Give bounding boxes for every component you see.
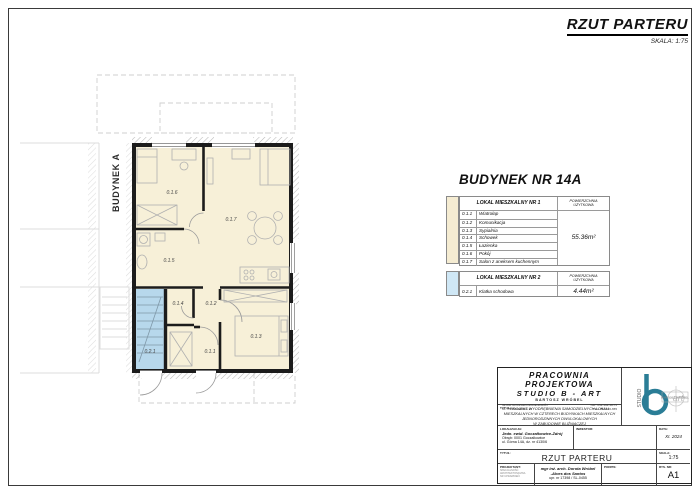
room-label: 0.2.1 (144, 349, 155, 355)
logo-studio-text: STUDIO (637, 388, 643, 407)
room-label: 0.1.1 (204, 349, 215, 355)
page-title: RZUT PARTERU (567, 16, 688, 36)
legend-row-name: Schowek (477, 235, 557, 242)
investor-cell: INWESTOR: (574, 426, 656, 449)
legend-row-name: Komunikacja (477, 220, 557, 227)
signature-cell: PODPIS: (602, 464, 656, 485)
room-label: 0.1.3 (250, 334, 261, 340)
drawing-title-cell: TYTUŁ: RZUT PARTERU (498, 450, 656, 463)
legend2-swatch (446, 271, 459, 296)
firm-name-line2: STUDIO B - ART (498, 389, 621, 398)
location-line3: ul. Górna 14A, dz. nr 4130/6 (502, 440, 573, 444)
legend1-area-total: 55.36m² (557, 211, 609, 265)
drawing-number-label: RYS. NR: (657, 464, 690, 469)
legend-row-name: Sypialnia (477, 228, 557, 235)
sheet-header: RZUT PARTERU SKALA: 1:75 (567, 16, 688, 45)
legend1-swatch (446, 196, 459, 264)
designer-label-cell: PROJEKTANT: SPECJALNOŚĆ: ARCHITEKTONICZN… (498, 464, 534, 485)
legend2-area-total: 4.44m² (557, 286, 609, 296)
legend-row-num: 0.1.7 (460, 259, 477, 266)
legend1-title: LOKAL MIESZKALNY NR 1 (460, 197, 557, 210)
room-label: 0.1.6 (166, 190, 177, 196)
legend-row-name: Wiatrołap (477, 211, 557, 219)
legend2-title: LOKAL MIESZKALNY NR 2 (460, 272, 557, 285)
room-label: 0.1.2 (205, 301, 216, 307)
legend-row-name: Łazienka (477, 243, 557, 250)
project-subject-cell: TYTUŁ: PROJEKT WYODRĘBNIENIA SAMODZIELNY… (498, 405, 621, 425)
scale-cell: SKALA: 1:75 (657, 450, 690, 463)
room-label: 0.1.5 (163, 258, 174, 264)
date-value: XI. 2024 (657, 434, 690, 439)
subject-label: TYTUŁ: (500, 406, 511, 410)
firm-name-line1: PRACOWNIA PROJEKTOWA (498, 371, 621, 389)
title-block: PRACOWNIA PROJEKTOWA STUDIO B - ART BART… (497, 367, 692, 484)
firm-header: PRACOWNIA PROJEKTOWA STUDIO B - ART BART… (498, 368, 621, 404)
investor-label: INWESTOR: (574, 426, 656, 431)
legend2-area-header: POWIERZCHNIA UŻYTKOWA (557, 272, 609, 285)
legend1-area-header: POWIERZCHNIA UŻYTKOWA (557, 197, 609, 210)
legend-row-num: 0.1.3 (460, 228, 477, 235)
room-label: 0.1.7 (225, 217, 236, 223)
designer-name-cell: mgr inż. arch. Dorota Wróbel -Alves dos … (535, 464, 601, 485)
legend-row-num: 0.1.1 (460, 211, 477, 219)
drawing-sheet: 0.1.6 0.1.7 0.1.5 0.1.4 0.1.2 0.2.1 0.1.… (0, 0, 700, 494)
studio-bart-logo: STUDIO art BARTOSZ WRÓBEL (622, 368, 690, 424)
location-cell: LOKALIZACJA: Jedn. ewid. Goczałkowice-Zd… (498, 426, 573, 449)
signature-label: PODPIS: (602, 464, 656, 469)
drawing-title-value: RZUT PARTERU (498, 453, 656, 463)
scale-note: SKALA: 1:75 (567, 38, 688, 45)
legend-row-name: Pokój (477, 251, 557, 258)
drawing-number-value: A1 (657, 470, 690, 481)
room-label: 0.1.4 (172, 301, 183, 307)
legend-row-name: Salon z aneksem kuchennym (477, 259, 557, 266)
designer-licence: upr. nr 17398 / SL-0455 (535, 476, 601, 480)
legend-row-num: 0.2.1 (460, 286, 477, 296)
date-label: DATA: (657, 426, 690, 431)
building-heading: BUDYNEK NR 14A (459, 172, 582, 187)
legend-row-num: 0.1.4 (460, 235, 477, 242)
neighbor-building-label: BUDYNEK A (111, 153, 121, 212)
legend-row-num: 0.1.2 (460, 220, 477, 227)
legend-row-num: 0.1.5 (460, 243, 477, 250)
legend-row-name: Klatka schodowa (477, 286, 557, 296)
legend-table-2: LOKAL MIESZKALNY NR 2 POWIERZCHNIA UŻYTK… (459, 271, 610, 297)
date-cell: DATA: XI. 2024 (657, 426, 690, 449)
logo-owner-text: BARTOSZ WRÓBEL (661, 395, 689, 400)
drawing-number-cell: RYS. NR: A1 (657, 464, 690, 485)
drawing-title-label: TYTUŁ: (500, 451, 511, 455)
legend-table-1: LOKAL MIESZKALNY NR 1 POWIERZCHNIA UŻYTK… (459, 196, 610, 266)
legend-row-num: 0.1.6 (460, 251, 477, 258)
scale-value: 1:75 (657, 455, 690, 461)
designer-sub3: NR UPRAWNIEŃ: (498, 475, 534, 478)
